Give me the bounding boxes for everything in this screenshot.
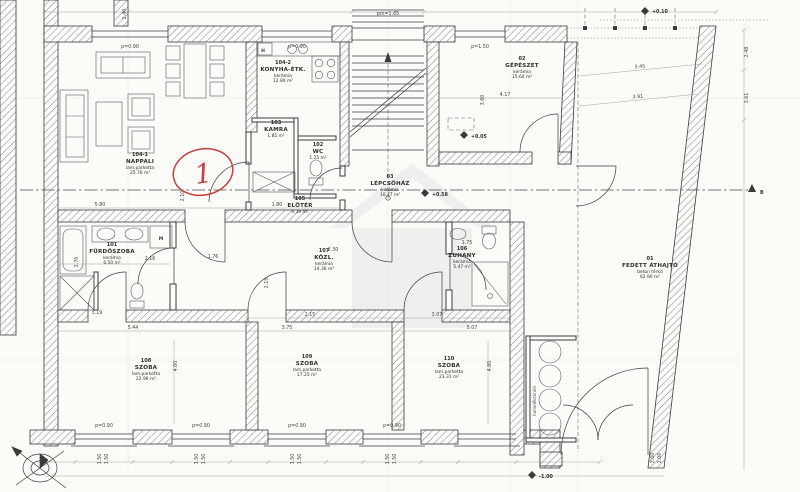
- svg-text:pm=1.65: pm=1.65: [377, 11, 399, 17]
- washing-machine-label: M: [159, 236, 164, 242]
- svg-text:2.16: 2.16: [145, 256, 156, 262]
- room-label-szoba110: 110 SZOBA lam.parketta 23.31 m²: [435, 356, 463, 381]
- room-area: 22.96 m²: [132, 377, 160, 383]
- room-name: LÉPCSŐHÁZ: [370, 181, 409, 188]
- north-compass: [12, 447, 66, 488]
- room-label-szoba108: 108 SZOBA lam.parketta 22.96 m²: [132, 358, 160, 383]
- room-area: 17.25 m²: [293, 373, 321, 379]
- svg-text:p=0.90: p=0.90: [288, 423, 306, 429]
- room-area: 5.47 m²: [448, 265, 476, 271]
- svg-text:p=0.90: p=0.90: [383, 423, 401, 429]
- room-label-konyha: 104-2 KONYHA-ÉTK. kerámia 12.80 m²: [260, 60, 305, 85]
- floor-plan-sheet: B 5.80 1.80 2.30 2.15 2.15 3.75 3.07 5.4…: [0, 0, 800, 492]
- room-area: 25.76 m²: [126, 171, 154, 177]
- red-annotation: 1: [169, 143, 237, 200]
- room-label-wc: 102 WC 1.25 m²: [309, 142, 326, 161]
- room-name: KONYHA-ÉTK.: [260, 67, 305, 74]
- stove: [312, 56, 338, 82]
- svg-text:5.07: 5.07: [467, 325, 478, 331]
- room-area: 62.90 m²: [622, 275, 678, 281]
- wc-toilet: [310, 160, 322, 176]
- room-label-kamra: 103 KAMRA 1.85 m²: [264, 120, 288, 139]
- gepeszet-niche: [448, 118, 474, 130]
- svg-text:1.50: 1.50: [297, 454, 303, 465]
- vanity-counter: [92, 226, 148, 242]
- door-arc-eloter-kozl: [185, 222, 225, 262]
- room-area: 4.39 m²: [287, 210, 312, 216]
- room-label-athajto: 01 FEDETT ÁTHAJTÓ beton térkő 62.90 m²: [622, 256, 678, 281]
- svg-text:3.07: 3.07: [432, 312, 443, 318]
- waste-bins: [539, 341, 561, 435]
- bin-niche-label: hulladéktároló: [532, 386, 537, 416]
- svg-text:2.15: 2.15: [305, 312, 316, 318]
- svg-text:2.48: 2.48: [744, 47, 750, 58]
- sink: [97, 228, 115, 240]
- svg-text:1.50: 1.50: [97, 454, 103, 465]
- svg-text:3.19: 3.19: [92, 310, 103, 316]
- svg-text:p=0.90: p=0.90: [121, 44, 139, 50]
- room-name: SZOBA: [435, 363, 463, 370]
- room-label-gepeszet: 02 GÉPÉSZET kerámia 15.60 m²: [505, 56, 539, 81]
- red-mark: 1: [193, 158, 214, 191]
- svg-text:2.15: 2.15: [264, 278, 270, 289]
- svg-text:p=1.50: p=1.50: [471, 44, 489, 50]
- door-arc-lobby-athajto: [576, 166, 616, 206]
- svg-text:1.80: 1.80: [272, 202, 283, 208]
- room-label-nappali: 104-1 NAPPALI lam.parketta 25.76 m²: [126, 152, 154, 177]
- svg-text:2.40: 2.40: [122, 9, 128, 20]
- toilet: [131, 283, 143, 299]
- svg-text:2.70: 2.70: [74, 257, 80, 268]
- partition-walls: [94, 118, 576, 442]
- room-area: 12.80 m²: [260, 79, 305, 85]
- room-name: SZOBA: [293, 361, 321, 368]
- gate-arc-right: [598, 405, 633, 440]
- room-name: ELŐTÉR: [287, 203, 312, 210]
- room-name: ZUHANY: [448, 253, 476, 260]
- svg-text:1.50: 1.50: [201, 454, 207, 465]
- room-label-zuhany: 106 ZUHANY kerámia 5.47 m²: [448, 246, 476, 271]
- svg-text:3.61: 3.61: [744, 93, 750, 104]
- neighbor-wall: [0, 0, 16, 335]
- svg-text:3.45: 3.45: [634, 64, 645, 71]
- room-name: NAPPALI: [126, 159, 154, 166]
- svg-text:3.60: 3.60: [480, 95, 486, 106]
- room-area: 14.36 m²: [314, 267, 334, 273]
- living-room-furniture: [60, 44, 224, 162]
- svg-text:3.91: 3.91: [632, 94, 643, 101]
- room-name: FEDETT ÁTHAJTÓ: [622, 263, 678, 270]
- svg-text:4.00: 4.00: [173, 361, 179, 372]
- room-name: WC: [309, 149, 326, 156]
- level-yard: -1.00: [539, 474, 553, 480]
- room-name: GÉPÉSZET: [505, 63, 539, 70]
- svg-text:3.75: 3.75: [282, 325, 293, 331]
- svg-text:p=0.90: p=0.90: [192, 423, 210, 429]
- svg-text:5.44: 5.44: [128, 325, 139, 331]
- room-area: 6.50 m²: [89, 261, 135, 267]
- room-label-kozl: 107 KÖZL. kerámia 14.36 m²: [314, 248, 334, 273]
- room-area: 1.25 m²: [309, 156, 326, 162]
- door-arc-gepeszet: [520, 114, 558, 152]
- svg-text:4.60: 4.60: [487, 361, 493, 372]
- door-arc-furdo: [138, 248, 174, 284]
- svg-text:5.80: 5.80: [95, 202, 106, 208]
- passage-left-wall: [510, 222, 524, 455]
- room-label-szoba109: 109 SZOBA lam.parketta 17.25 m²: [293, 354, 321, 379]
- section-label: B: [760, 190, 764, 196]
- room-label-lepcsohaz: 03 LÉPCSŐHÁZ kerámia 10.77 m²: [370, 174, 409, 199]
- toilet: [483, 233, 496, 249]
- room-name: KÖZL.: [314, 255, 334, 262]
- room-label-furdoszoba: 101 FÜRDŐSZOBA kerámia 6.50 m²: [89, 242, 135, 267]
- room-name: FÜRDŐSZOBA: [89, 249, 135, 256]
- svg-text:3.00: 3.00: [650, 453, 656, 464]
- svg-text:1.50: 1.50: [194, 454, 200, 465]
- level-gepeszet: +0.05: [471, 134, 487, 140]
- svg-text:p=0.90: p=0.90: [95, 423, 113, 429]
- room-name: SZOBA: [132, 365, 160, 372]
- gate-arc-left: [563, 405, 598, 440]
- room-area: 1.85 m²: [264, 134, 288, 140]
- svg-text:p=0.90: p=0.90: [288, 44, 306, 50]
- svg-text:1.50: 1.50: [290, 454, 296, 465]
- svg-text:4.17: 4.17: [500, 92, 511, 98]
- fridge-label: H: [261, 48, 265, 54]
- room-area: 15.60 m²: [505, 75, 539, 81]
- svg-text:1.50: 1.50: [392, 454, 398, 465]
- svg-text:2.00: 2.00: [657, 453, 663, 464]
- svg-text:1.76: 1.76: [208, 254, 219, 260]
- room-label-eloter: 105 ELŐTÉR 4.39 m²: [287, 196, 312, 215]
- room-area: 23.31 m²: [435, 375, 463, 381]
- room-area: 10.77 m²: [370, 193, 409, 199]
- dining-table: [184, 44, 206, 98]
- bathtub: [60, 226, 86, 274]
- slanted-right-wall: [648, 26, 716, 468]
- svg-text:1.50: 1.50: [385, 454, 391, 465]
- room-name: KAMRA: [264, 127, 288, 134]
- level-street: +0.10: [652, 9, 669, 15]
- left-wall: [44, 26, 58, 446]
- svg-text:1.50: 1.50: [104, 454, 110, 465]
- level-stair: +0.58: [432, 192, 449, 198]
